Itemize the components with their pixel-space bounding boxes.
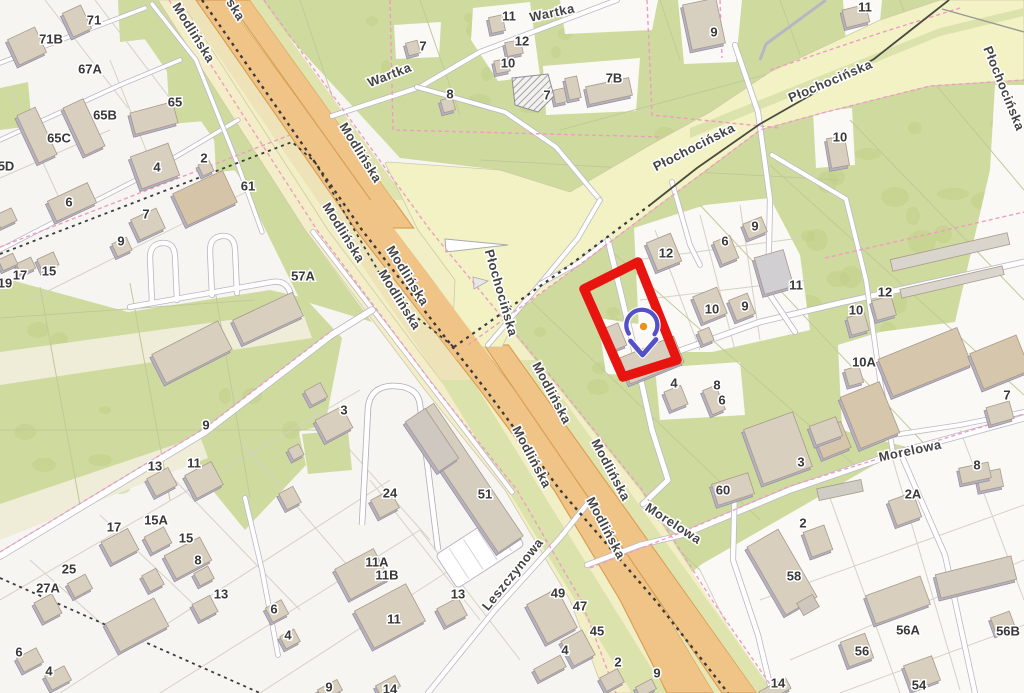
svg-text:17: 17 (107, 519, 121, 534)
svg-text:11: 11 (502, 8, 516, 23)
svg-text:9: 9 (325, 679, 332, 693)
svg-text:6: 6 (721, 233, 728, 248)
svg-text:8: 8 (194, 552, 201, 567)
svg-text:4: 4 (284, 627, 292, 642)
svg-text:67A: 67A (78, 61, 102, 76)
svg-text:51: 51 (478, 486, 492, 501)
svg-text:11: 11 (387, 611, 401, 626)
svg-text:9: 9 (202, 417, 209, 432)
svg-text:9: 9 (751, 218, 758, 233)
svg-text:11: 11 (187, 455, 201, 470)
svg-text:8: 8 (973, 457, 980, 472)
svg-text:6: 6 (15, 644, 22, 659)
svg-text:13: 13 (148, 458, 162, 473)
svg-text:24: 24 (383, 485, 398, 500)
svg-text:7: 7 (1003, 387, 1010, 402)
svg-text:6: 6 (718, 392, 725, 407)
svg-text:10: 10 (501, 55, 515, 70)
svg-text:61: 61 (241, 178, 255, 193)
svg-text:57A: 57A (291, 268, 315, 283)
svg-text:7: 7 (543, 87, 550, 102)
svg-text:11: 11 (858, 0, 872, 14)
svg-text:8: 8 (446, 86, 453, 101)
svg-text:5D: 5D (0, 158, 14, 173)
svg-text:15: 15 (42, 263, 56, 278)
svg-text:45: 45 (590, 623, 604, 638)
svg-text:7: 7 (142, 206, 149, 221)
svg-text:9: 9 (653, 665, 660, 680)
svg-text:17: 17 (13, 267, 27, 282)
svg-text:10A: 10A (852, 354, 876, 369)
svg-text:19: 19 (0, 275, 12, 290)
svg-text:9: 9 (710, 24, 717, 39)
svg-text:14: 14 (383, 681, 398, 693)
svg-text:11B: 11B (375, 567, 398, 582)
svg-text:71B: 71B (39, 31, 63, 46)
svg-text:4: 4 (153, 159, 161, 174)
svg-text:6: 6 (270, 601, 277, 616)
svg-text:4: 4 (561, 642, 569, 657)
svg-text:10: 10 (849, 302, 863, 317)
svg-text:4: 4 (670, 375, 678, 390)
svg-text:9: 9 (117, 233, 124, 248)
svg-text:12: 12 (659, 245, 673, 260)
svg-text:49: 49 (551, 585, 565, 600)
svg-text:2: 2 (799, 515, 806, 530)
svg-text:56: 56 (855, 643, 869, 658)
svg-text:25: 25 (62, 561, 76, 576)
svg-text:8: 8 (713, 377, 720, 392)
svg-text:14: 14 (771, 675, 786, 690)
svg-text:15A: 15A (144, 512, 168, 527)
svg-text:47: 47 (573, 598, 587, 613)
svg-text:10: 10 (705, 301, 719, 316)
svg-text:60: 60 (716, 482, 730, 497)
svg-text:65C: 65C (47, 130, 71, 145)
svg-text:9: 9 (741, 298, 748, 313)
svg-text:2: 2 (614, 654, 621, 669)
svg-text:12: 12 (878, 284, 892, 299)
svg-text:3: 3 (340, 402, 347, 417)
svg-text:65: 65 (168, 94, 182, 109)
svg-text:13: 13 (451, 586, 465, 601)
svg-text:6: 6 (65, 194, 72, 209)
svg-text:58: 58 (787, 568, 801, 583)
svg-text:10: 10 (833, 129, 847, 144)
svg-text:12: 12 (515, 33, 529, 48)
svg-text:2A: 2A (905, 486, 922, 501)
svg-text:3: 3 (797, 454, 804, 469)
svg-text:13: 13 (214, 586, 228, 601)
svg-text:7B: 7B (606, 70, 623, 85)
svg-text:7: 7 (419, 38, 426, 53)
svg-text:54: 54 (912, 677, 927, 692)
svg-text:2: 2 (200, 150, 207, 165)
svg-text:71: 71 (87, 12, 101, 27)
svg-text:65B: 65B (93, 107, 117, 122)
svg-text:4: 4 (45, 663, 53, 678)
svg-text:56B: 56B (996, 623, 1020, 638)
svg-text:11: 11 (789, 277, 803, 292)
svg-text:15: 15 (179, 530, 193, 545)
svg-text:56A: 56A (896, 622, 920, 637)
svg-text:27A: 27A (36, 580, 60, 595)
